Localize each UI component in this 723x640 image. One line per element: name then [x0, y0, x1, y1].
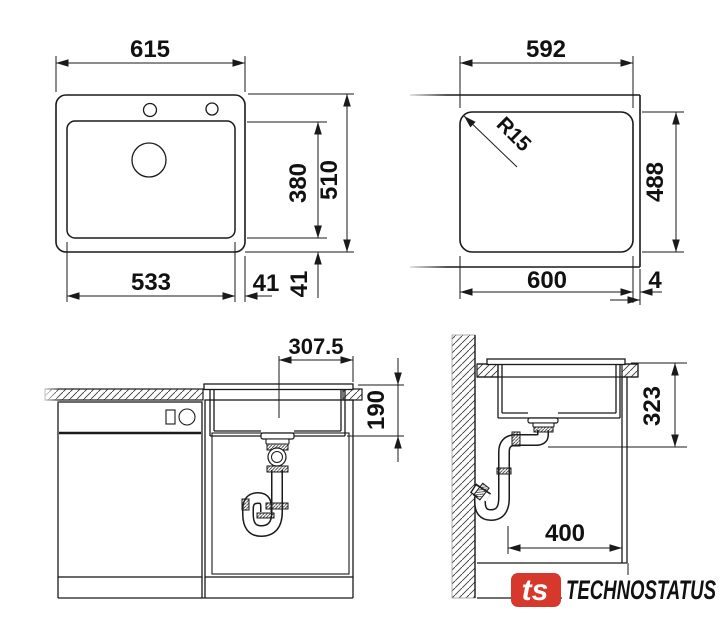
- front-view-labels: 307.5 190: [288, 334, 390, 430]
- countertop-fade: [403, 88, 447, 274]
- side-section-view: [452, 335, 687, 598]
- coupling-nut-4: [257, 513, 274, 518]
- side-countertop: [477, 364, 638, 377]
- dishwasher-button: [166, 410, 175, 424]
- front-counter-fade: [40, 383, 60, 403]
- label-drain-center: 307.5: [288, 334, 343, 359]
- label-overall-width: 615: [130, 36, 170, 63]
- dim-cutout-width: [460, 56, 633, 108]
- countertop-right: [343, 389, 362, 400]
- brand-logo: ts TECHNOSTATUS: [511, 573, 720, 607]
- bowl-section: [210, 390, 345, 437]
- label-overall-depth: 510: [316, 160, 343, 200]
- cabinets: [58, 400, 353, 598]
- side-counter-left: [477, 364, 498, 377]
- coupling-nut-3: [266, 503, 288, 509]
- dishwasher-knob: [179, 409, 195, 425]
- sink-outline: [56, 95, 245, 252]
- label-bowl-width: 533: [131, 269, 171, 296]
- label-cutout-depth: 488: [642, 162, 669, 202]
- side-counter-right: [622, 364, 638, 377]
- cutout-outline: [460, 112, 633, 252]
- sink-installation-drawing: 615 533 41 41 380 510: [0, 0, 723, 640]
- tap-hole-right: [206, 103, 218, 115]
- label-drain-height: 323: [639, 386, 666, 426]
- label-corner-radius: R15: [492, 113, 536, 157]
- coupling-nut-5: [242, 499, 249, 510]
- label-bowl-height: 190: [363, 390, 390, 430]
- logo-badge-text: ts: [522, 574, 549, 607]
- label-cutout-width: 592: [526, 36, 566, 63]
- dishwasher-front: [58, 402, 202, 577]
- coupling-nut-2: [267, 466, 288, 472]
- side-coupling-1: [534, 427, 553, 432]
- cutout-view-labels: 592 488 600 4 R15: [492, 36, 669, 294]
- logo-brand-text: TECHNOSTATUS: [566, 575, 716, 605]
- trap-pipe-inner: [248, 470, 277, 531]
- side-coupling-3: [497, 468, 511, 474]
- label-edge-gap: 4: [648, 267, 662, 294]
- plan-view-labels: 615 533 41 41 380 510: [130, 36, 343, 297]
- side-strainer-flange: [528, 418, 558, 423]
- label-rear-offset: 41: [286, 271, 313, 298]
- countertop-left: [45, 389, 203, 400]
- label-drain-wall-offset: 400: [545, 520, 585, 547]
- front-section-view: [45, 356, 404, 598]
- strainer-ring: [266, 439, 289, 444]
- bowl-outline: [67, 121, 235, 238]
- side-sink-rim: [487, 359, 625, 365]
- drain-hole: [132, 143, 166, 177]
- side-strainer-ring: [533, 423, 554, 427]
- label-bowl-depth: 380: [285, 163, 312, 203]
- wall-section: [452, 335, 475, 598]
- siphon-side: [473, 418, 558, 515]
- label-side-offset: 41: [253, 270, 280, 297]
- trap-inlet-nut: [268, 448, 286, 466]
- siphon-front: [242, 433, 294, 531]
- side-view-labels: 323 400: [545, 386, 666, 547]
- label-outer-width: 600: [527, 267, 567, 294]
- dim-drain-height: [548, 363, 687, 447]
- strainer-flange: [261, 433, 294, 439]
- tap-hole-left: [144, 104, 157, 117]
- side-coupling-2: [512, 432, 520, 446]
- side-bowl-section: [498, 364, 620, 418]
- technical-drawing-sheet: 615 533 41 41 380 510: [0, 0, 723, 640]
